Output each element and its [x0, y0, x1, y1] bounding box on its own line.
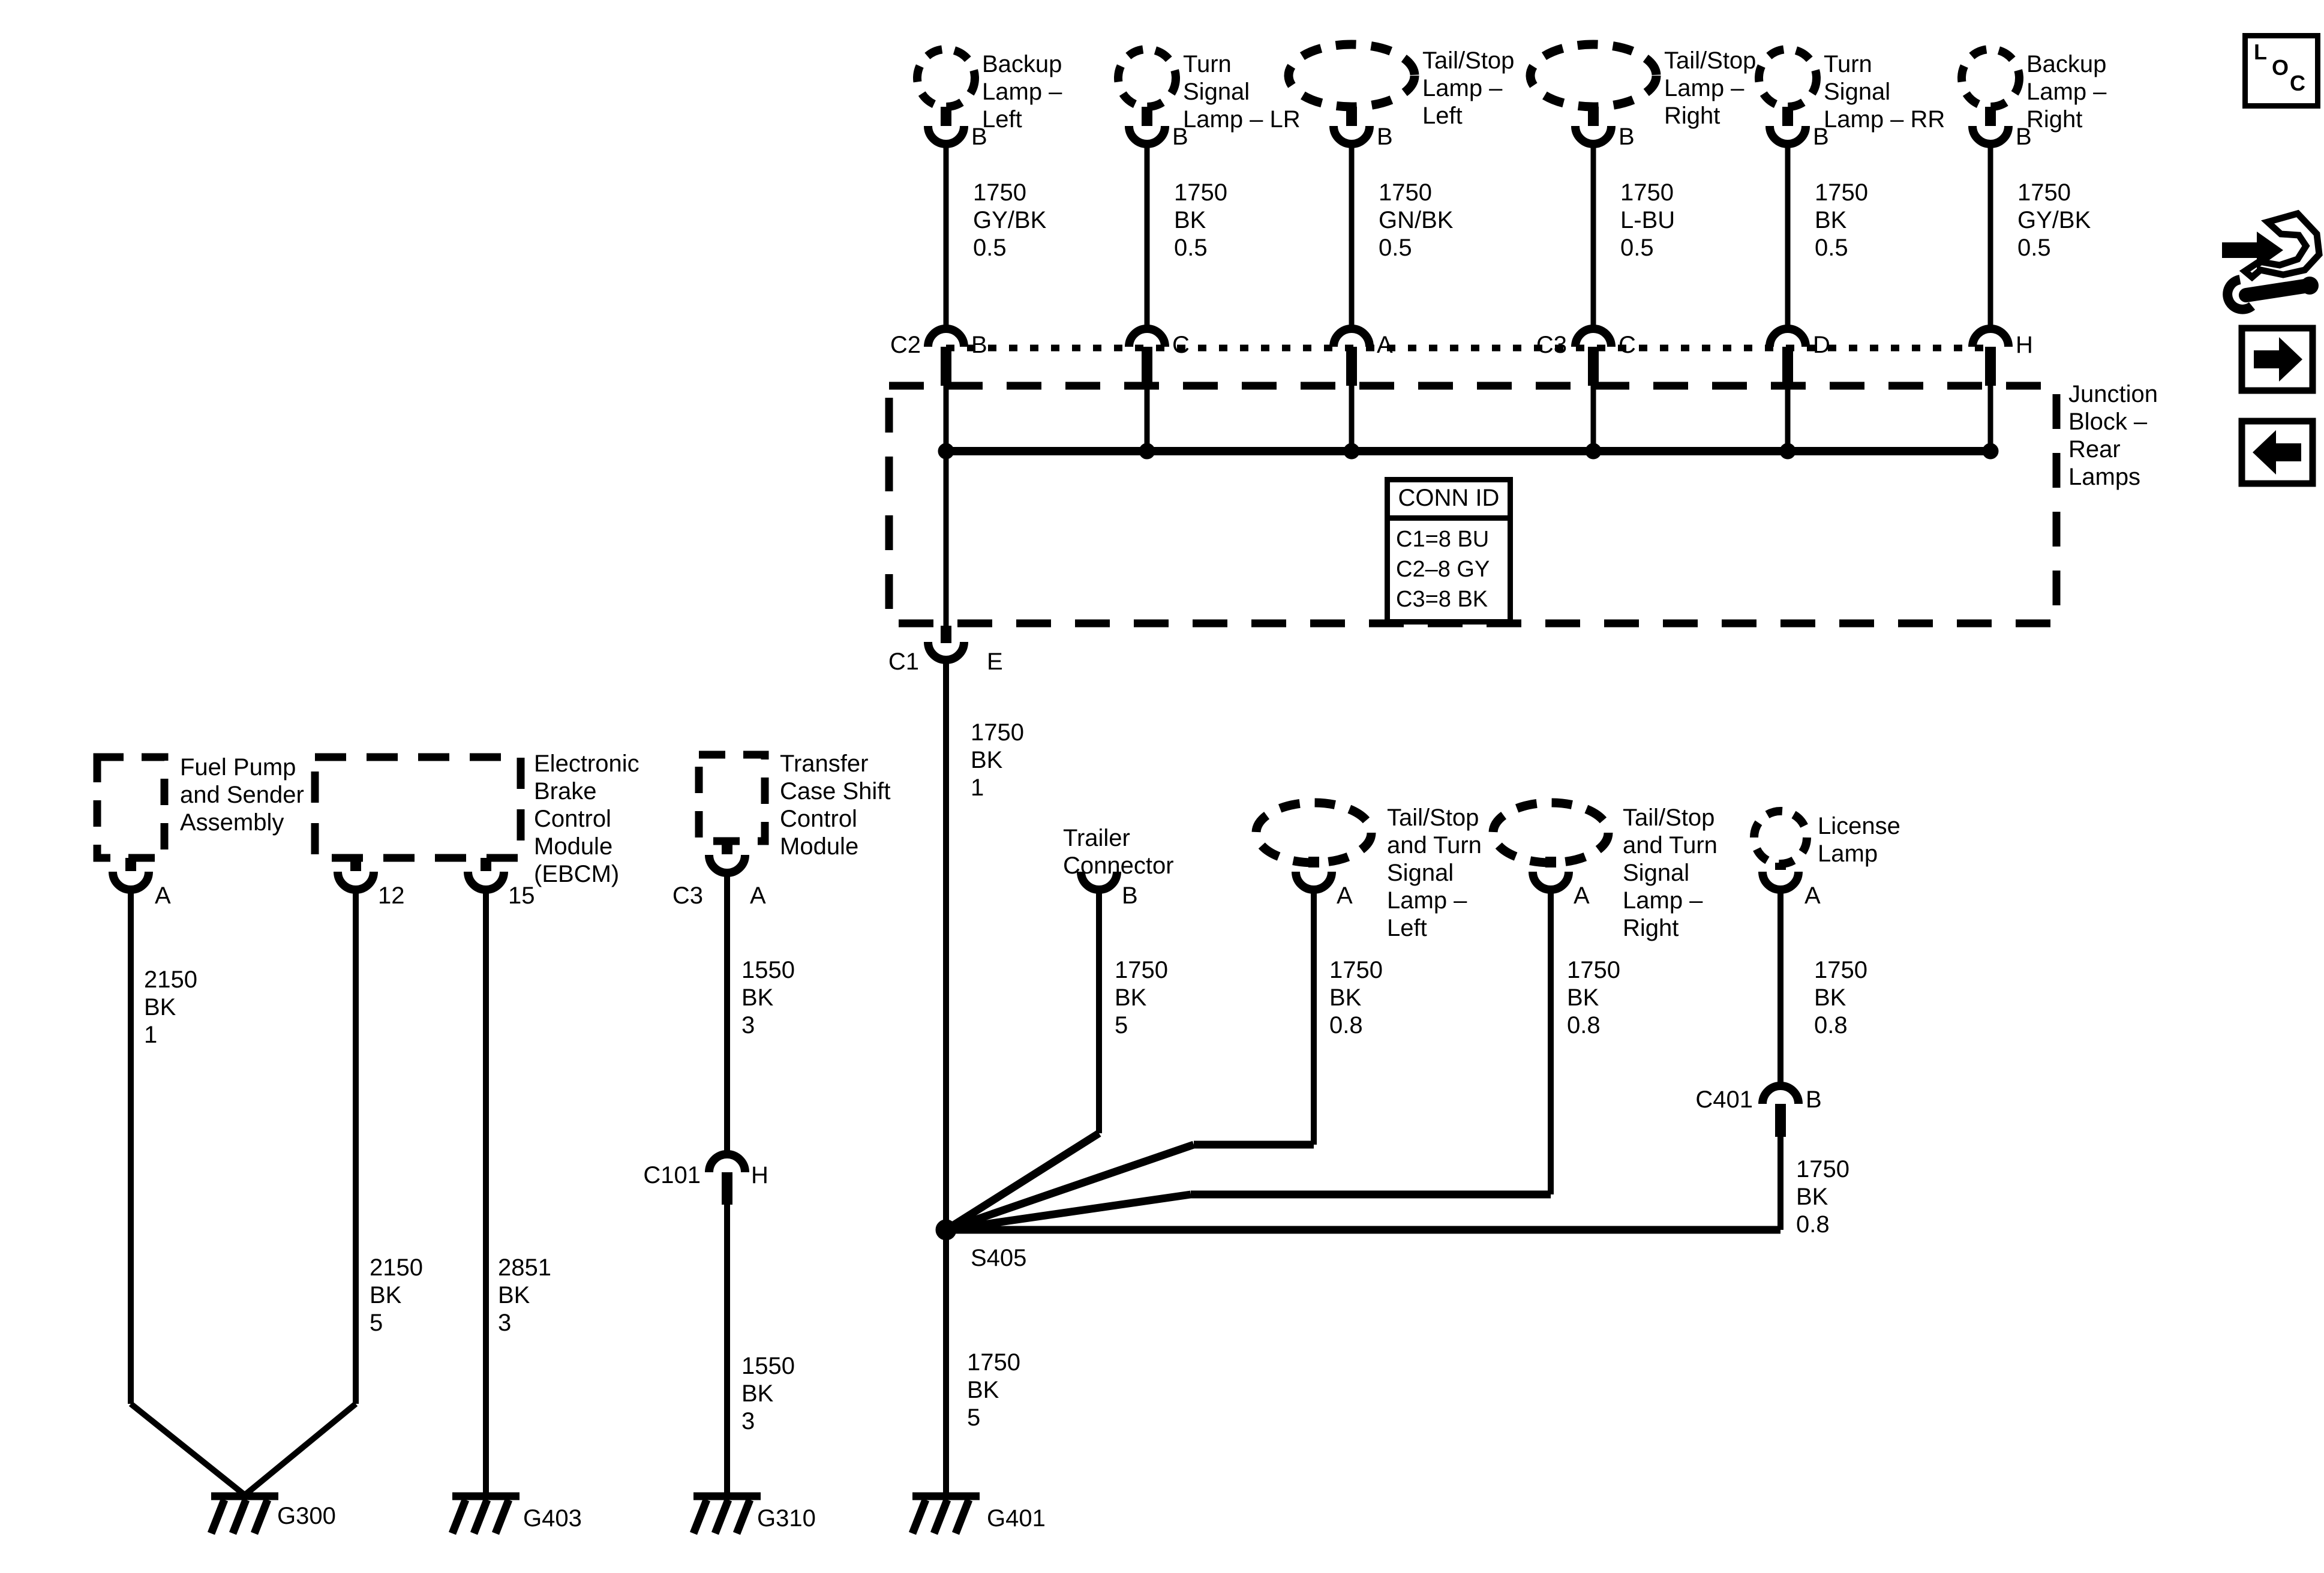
pin-label: A	[1574, 882, 1590, 909]
wire-label: 1750 GY/BK 0.5	[2017, 179, 2091, 262]
wire-label: 1750 BK 0.8	[1329, 956, 1383, 1039]
pin-label: B	[1172, 123, 1188, 151]
wire-label: 1750 BK 0.8	[1796, 1155, 1849, 1238]
backup-lamp-left-icon	[917, 49, 975, 144]
pin-label: A	[155, 882, 171, 909]
ground-g403-label: G403	[523, 1505, 582, 1532]
transfer-case-box-icon	[699, 755, 765, 873]
tail-stop-left-label: Tail/Stop Lamp – Left	[1422, 47, 1514, 130]
pin-label: 12	[378, 882, 405, 909]
pin-label: C	[1172, 331, 1190, 359]
ground-g310-label: G310	[757, 1505, 816, 1532]
pin-label: B	[1813, 123, 1829, 151]
wire-label: 1750 BK 0.5	[1815, 179, 1868, 262]
connector-id-c3-transfer: C3	[613, 882, 703, 909]
junction-block-connectors	[928, 329, 2008, 386]
pin-label: D	[1813, 331, 1830, 359]
loc-letter-l: L	[2254, 40, 2267, 65]
pin-label: B	[1619, 123, 1635, 151]
pin-label: B	[971, 331, 987, 359]
pin-label: A	[1337, 882, 1353, 909]
backup-lamp-right-label: Backup Lamp – Right	[2026, 50, 2106, 133]
ebcm-label: Electronic Brake Control Module (EBCM)	[534, 750, 639, 888]
ground-g300-label: G300	[277, 1502, 336, 1530]
pin-label: A	[750, 882, 766, 909]
junction-block-label: Junction Block – Rear Lamps	[2068, 380, 2158, 491]
wire-label: 1750 GN/BK 0.5	[1379, 179, 1453, 262]
tail-stop-turn-left-icon	[1256, 803, 1371, 890]
wire-label: 2150 BK 1	[144, 966, 197, 1049]
lower-wires	[131, 873, 1780, 1496]
fuel-pump-label: Fuel Pump and Sender Assembly	[180, 754, 304, 836]
pin-label: H	[2016, 331, 2033, 359]
wire-label: 1750 BK 0.8	[1814, 956, 1867, 1039]
turn-signal-lr-label: Turn Signal Lamp – LR	[1183, 50, 1301, 133]
ebcm-box-icon	[315, 757, 521, 890]
previous-page-button[interactable]	[2242, 421, 2313, 484]
tail-stop-turn-right-label: Tail/Stop and Turn Signal Lamp – Right	[1623, 804, 1718, 942]
wire-label: 2851 BK 3	[498, 1254, 551, 1337]
wire-label: 1750 L-BU 0.5	[1620, 179, 1675, 262]
license-lamp-icon	[1754, 811, 1807, 890]
loc-letter-o: O	[2272, 55, 2289, 80]
wire-label: 1750 GY/BK 0.5	[973, 179, 1046, 262]
tail-stop-turn-right-icon	[1493, 803, 1608, 890]
c401-connector	[1762, 1086, 1798, 1137]
wire-label: 1550 BK 3	[741, 956, 795, 1039]
c1-connector	[928, 626, 964, 660]
conn-id-row: C2–8 GY	[1390, 554, 1508, 584]
s405-splice-branches	[946, 1133, 1780, 1230]
ground-g300-icon	[211, 1496, 278, 1533]
transfer-case-label: Transfer Case Shift Control Module	[780, 750, 891, 860]
loc-letter-c: C	[2290, 71, 2305, 96]
wire-label: 1750 BK 5	[967, 1349, 1020, 1431]
pin-label: A	[1804, 882, 1821, 909]
s405-splice-dot	[936, 1220, 956, 1240]
pin-label: E	[987, 648, 1003, 676]
c101-connector	[709, 1154, 745, 1205]
repair-info-icon[interactable]	[2222, 214, 2319, 310]
wiring-geometry	[0, 0, 2324, 1573]
tail-stop-lamp-right-icon	[1530, 44, 1656, 144]
turn-signal-rr-label: Turn Signal Lamp – RR	[1824, 50, 1945, 133]
wire-label: 1750 BK 1	[971, 719, 1024, 801]
splice-s405-label: S405	[971, 1244, 1026, 1272]
ground-g310-icon	[693, 1496, 761, 1533]
connector-id-c3: C3	[1477, 331, 1567, 359]
ground-g401-label: G401	[987, 1505, 1046, 1532]
ground-g403-icon	[452, 1496, 520, 1533]
conn-id-header: CONN ID	[1390, 482, 1508, 521]
conn-id-row: C1=8 BU	[1390, 524, 1508, 554]
conn-id-table: CONN ID C1=8 BU C2–8 GY C3=8 BK	[1385, 477, 1513, 625]
wire-label: 1750 BK 0.8	[1567, 956, 1620, 1039]
backup-lamp-left-label: Backup Lamp – Left	[982, 50, 1062, 133]
ground-g401-icon	[912, 1496, 980, 1533]
next-page-button[interactable]	[2242, 328, 2313, 391]
license-lamp-label: License Lamp	[1818, 812, 1900, 867]
loc-button[interactable]: L O C	[2242, 33, 2320, 109]
turn-signal-lamp-rr-icon	[1759, 49, 1816, 144]
pin-label: B	[2016, 123, 2032, 151]
wire-label: 1750 BK 5	[1115, 956, 1168, 1039]
tail-stop-turn-left-label: Tail/Stop and Turn Signal Lamp – Left	[1387, 804, 1482, 942]
conn-id-row: C3=8 BK	[1390, 584, 1508, 614]
pin-label: 15	[508, 882, 535, 909]
pin-label: H	[751, 1161, 768, 1189]
pin-label: A	[1377, 331, 1393, 359]
trailer-connector-label: Trailer Connector	[1063, 824, 1174, 879]
wiring-diagram-rear-lamps: L O C Backup Lamp – Left Turn Signal Lam…	[0, 0, 2324, 1573]
pin-label: C	[1619, 331, 1636, 359]
pin-label: B	[1122, 882, 1138, 909]
wire-label: 2150 BK 5	[370, 1254, 423, 1337]
turn-signal-lamp-lr-icon	[1118, 49, 1176, 144]
wire-label: 1550 BK 3	[741, 1352, 795, 1435]
pin-label: B	[1806, 1086, 1822, 1113]
connector-id-c1: C1	[829, 648, 919, 676]
connector-id-c2: C2	[831, 331, 921, 359]
tail-stop-right-label: Tail/Stop Lamp – Right	[1664, 47, 1756, 130]
pin-label: B	[1377, 123, 1393, 151]
connector-id-c401: C401	[1663, 1086, 1753, 1113]
wire-label: 1750 BK 0.5	[1174, 179, 1227, 262]
fuel-pump-box-icon	[97, 757, 164, 890]
connector-id-c101: C101	[611, 1161, 701, 1189]
tail-stop-lamp-left-icon	[1289, 44, 1415, 144]
pin-label: B	[971, 123, 987, 151]
backup-lamp-right-icon	[1962, 49, 2019, 144]
